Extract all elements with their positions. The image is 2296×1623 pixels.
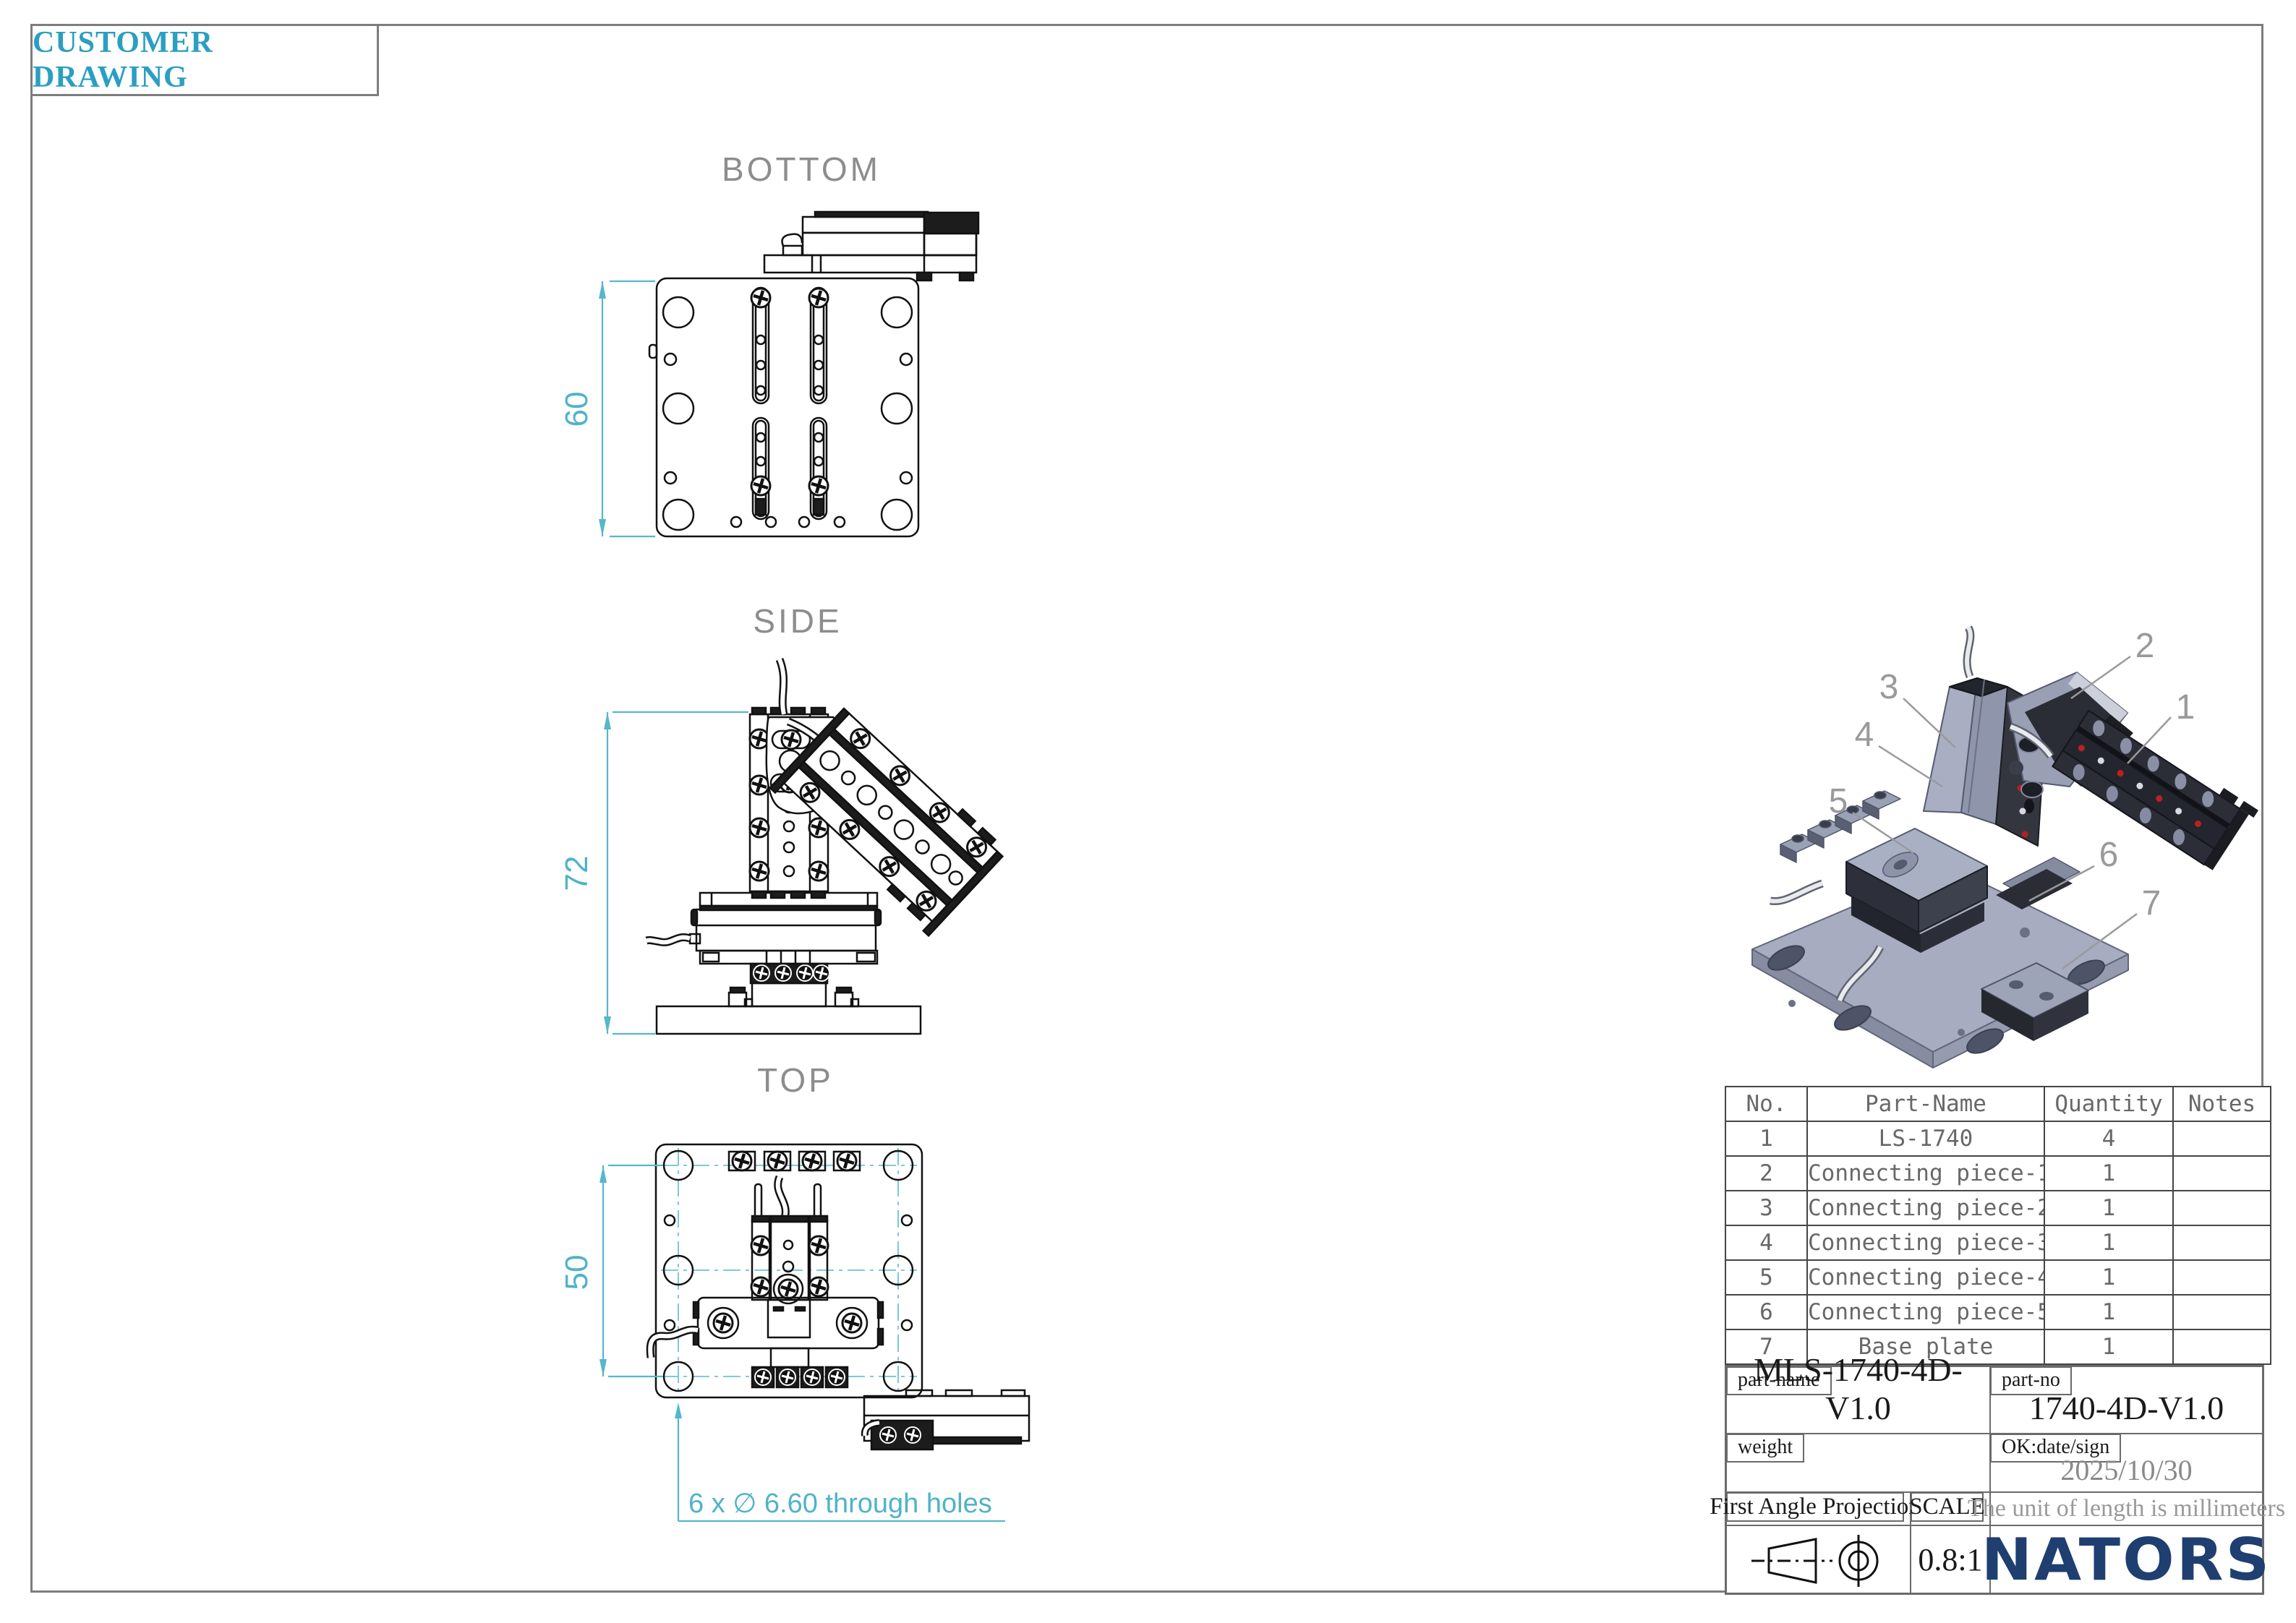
- callout-7: 7: [2142, 884, 2161, 922]
- top-view-drawing: [650, 1144, 1029, 1449]
- brand-cell: NATORS: [1991, 1526, 2262, 1593]
- top-view-label: TOP: [757, 1061, 834, 1099]
- table-row: 6 Connecting piece-5 1: [1725, 1295, 2271, 1329]
- side-dim-72: [604, 712, 748, 1034]
- col-notes: Notes: [2173, 1087, 2271, 1121]
- projection-label-cell: First Angle Projection: [1727, 1493, 1911, 1525]
- part-no-cell: part-no 1740-4D-V1.0: [1991, 1367, 2262, 1433]
- first-angle-projection-icon: [1727, 1526, 1911, 1596]
- side-view-drawing: [646, 659, 1007, 1034]
- callout-5: 5: [1829, 782, 1848, 821]
- side-view-label: SIDE: [753, 602, 842, 640]
- col-no: No.: [1725, 1087, 1807, 1121]
- cell-no: 4: [1725, 1225, 1807, 1260]
- cell-no: 6: [1725, 1295, 1807, 1329]
- cell-no: 3: [1725, 1191, 1807, 1225]
- table-row: 5 Connecting piece-4 1: [1725, 1260, 2271, 1295]
- part-name-cell: part-name MLS-1740-4D-V1.0: [1727, 1367, 1991, 1433]
- part-no-value: 1740-4D-V1.0: [1991, 1389, 2262, 1427]
- bottom-view-drawing: [649, 212, 978, 536]
- callout-6: 6: [2099, 836, 2119, 874]
- weight-label: weight: [1726, 1434, 1804, 1463]
- cell-qty: 1: [2044, 1191, 2173, 1225]
- cell-qty: 1: [2044, 1156, 2173, 1191]
- cell-notes: [2173, 1156, 2271, 1191]
- bottom-view-label: BOTTOM: [722, 150, 881, 188]
- approval-date: 2025/10/30: [1991, 1453, 2262, 1487]
- projection-symbol-cell: [1727, 1526, 1911, 1593]
- scale-value: 0.8:1: [1911, 1526, 1989, 1593]
- callout-1: 1: [2176, 688, 2195, 727]
- unit-note: The unit of length is millimeters: [1991, 1493, 2262, 1525]
- cell-name: Connecting piece-5: [1807, 1295, 2044, 1329]
- cell-qty: 1: [2044, 1295, 2173, 1329]
- customer-drawing-sheet: CUSTOMER DRAWING: [0, 0, 2296, 1623]
- scale-value-cell: 0.8:1: [1911, 1526, 1991, 1593]
- cell-name: Connecting piece-4: [1807, 1260, 2044, 1295]
- title-block: part-name MLS-1740-4D-V1.0 part-no 1740-…: [1725, 1365, 2264, 1595]
- parts-table-header: No. Part-Name Quantity Notes: [1725, 1087, 2271, 1121]
- table-row: 2 Connecting piece-1 1: [1725, 1156, 2271, 1191]
- cell-no: 5: [1725, 1260, 1807, 1295]
- cell-no: 2: [1725, 1156, 1807, 1191]
- part-name-value: MLS-1740-4D-V1.0: [1727, 1350, 1989, 1427]
- top-dim-50-label: 50: [559, 1255, 594, 1290]
- table-row: 1 LS-1740 4: [1725, 1121, 2271, 1156]
- cell-notes: [2173, 1329, 2271, 1364]
- bottom-dim-60: [599, 281, 655, 536]
- ok-date-sign-cell: OK:date/sign 2025/10/30: [1991, 1434, 2262, 1491]
- cell-name: LS-1740: [1807, 1121, 2044, 1156]
- cell-qty: 4: [2044, 1121, 2173, 1156]
- cell-name: Connecting piece-3: [1807, 1225, 2044, 1260]
- brand-logo: NATORS: [1984, 1526, 2269, 1593]
- cell-no: 1: [1725, 1121, 1807, 1156]
- table-row: 3 Connecting piece-2 1: [1725, 1191, 2271, 1225]
- top-hole-note: 6 x ∅ 6.60 through holes: [688, 1489, 992, 1519]
- cell-name: Connecting piece-1: [1807, 1156, 2044, 1191]
- callout-3: 3: [1879, 668, 1899, 706]
- col-qty: Quantity: [2044, 1087, 2173, 1121]
- cell-notes: [2173, 1225, 2271, 1260]
- cell-notes: [2173, 1121, 2271, 1156]
- side-dim-72-label: 72: [559, 856, 594, 891]
- col-name: Part-Name: [1807, 1087, 2044, 1121]
- weight-cell: weight: [1727, 1434, 1991, 1491]
- cell-qty: 1: [2044, 1260, 2173, 1295]
- callout-2: 2: [2135, 627, 2155, 665]
- cell-notes: [2173, 1295, 2271, 1329]
- callout-4: 4: [1855, 716, 1874, 754]
- cell-name: Connecting piece-2: [1807, 1191, 2044, 1225]
- unit-note-cell: The unit of length is millimeters: [1991, 1493, 2262, 1525]
- cell-qty: 1: [2044, 1329, 2173, 1364]
- cell-notes: [2173, 1191, 2271, 1225]
- parts-table: No. Part-Name Quantity Notes 1 LS-1740 4…: [1725, 1086, 2271, 1365]
- table-row: 4 Connecting piece-3 1: [1725, 1225, 2271, 1260]
- projection-label: First Angle Projection: [1726, 1492, 1904, 1522]
- cell-notes: [2173, 1260, 2271, 1295]
- cell-qty: 1: [2044, 1225, 2173, 1260]
- bottom-dim-60-label: 60: [559, 392, 594, 427]
